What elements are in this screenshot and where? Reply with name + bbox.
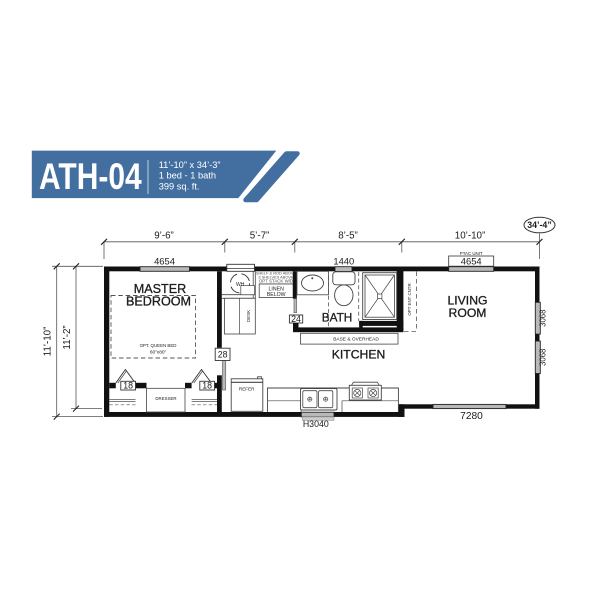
svg-text:BEDROOM: BEDROOM <box>126 294 191 308</box>
svg-text:KITCHEN: KITCHEN <box>332 348 386 362</box>
svg-text:399 sq. ft.: 399 sq. ft. <box>159 181 200 191</box>
svg-text:18: 18 <box>123 381 133 391</box>
svg-text:BASE & OVERHEAD: BASE & OVERHEAD <box>333 336 379 342</box>
svg-text:24: 24 <box>291 314 301 324</box>
svg-text:5’-7”: 5’-7” <box>250 231 270 242</box>
svg-text:11’-10”: 11’-10” <box>43 327 54 357</box>
svg-text:ATH-04: ATH-04 <box>39 156 142 198</box>
svg-text:8’-5”: 8’-5” <box>338 231 358 242</box>
svg-text:WH: WH <box>236 282 245 288</box>
svg-text:11’-2”: 11’-2” <box>62 325 73 349</box>
svg-text:18: 18 <box>202 381 212 391</box>
svg-text:4654: 4654 <box>461 256 482 267</box>
svg-text:OPT ENT CNTR: OPT ENT CNTR <box>407 283 412 315</box>
svg-text:1 bed - 1 bath: 1 bed - 1 bath <box>159 171 216 181</box>
svg-text:ROOM: ROOM <box>449 306 487 320</box>
svg-text:OPT. QUEEN BED: OPT. QUEEN BED <box>140 343 177 348</box>
svg-text:3068: 3068 <box>539 349 548 366</box>
svg-text:OPT STACK W/D: OPT STACK W/D <box>259 278 293 283</box>
svg-text:1440: 1440 <box>333 256 354 267</box>
svg-text:BELOW: BELOW <box>267 292 286 298</box>
svg-text:10’-10”: 10’-10” <box>455 231 486 242</box>
svg-text:H3040: H3040 <box>303 419 329 429</box>
svg-text:3068: 3068 <box>539 310 548 327</box>
svg-text:DESK: DESK <box>246 310 251 322</box>
svg-text:60”x80”: 60”x80” <box>150 350 167 356</box>
svg-text:4654: 4654 <box>154 256 175 267</box>
svg-text:11’-10” x 34’-3”: 11’-10” x 34’-3” <box>159 160 221 170</box>
svg-text:BATH: BATH <box>322 311 353 325</box>
svg-text:34’-4”: 34’-4” <box>527 220 551 230</box>
svg-text:28: 28 <box>218 350 228 360</box>
svg-text:9’-6”: 9’-6” <box>154 231 174 242</box>
svg-text:7280: 7280 <box>460 411 483 422</box>
svg-text:DRESSER: DRESSER <box>155 396 176 401</box>
svg-text:REFER: REFER <box>239 386 255 391</box>
